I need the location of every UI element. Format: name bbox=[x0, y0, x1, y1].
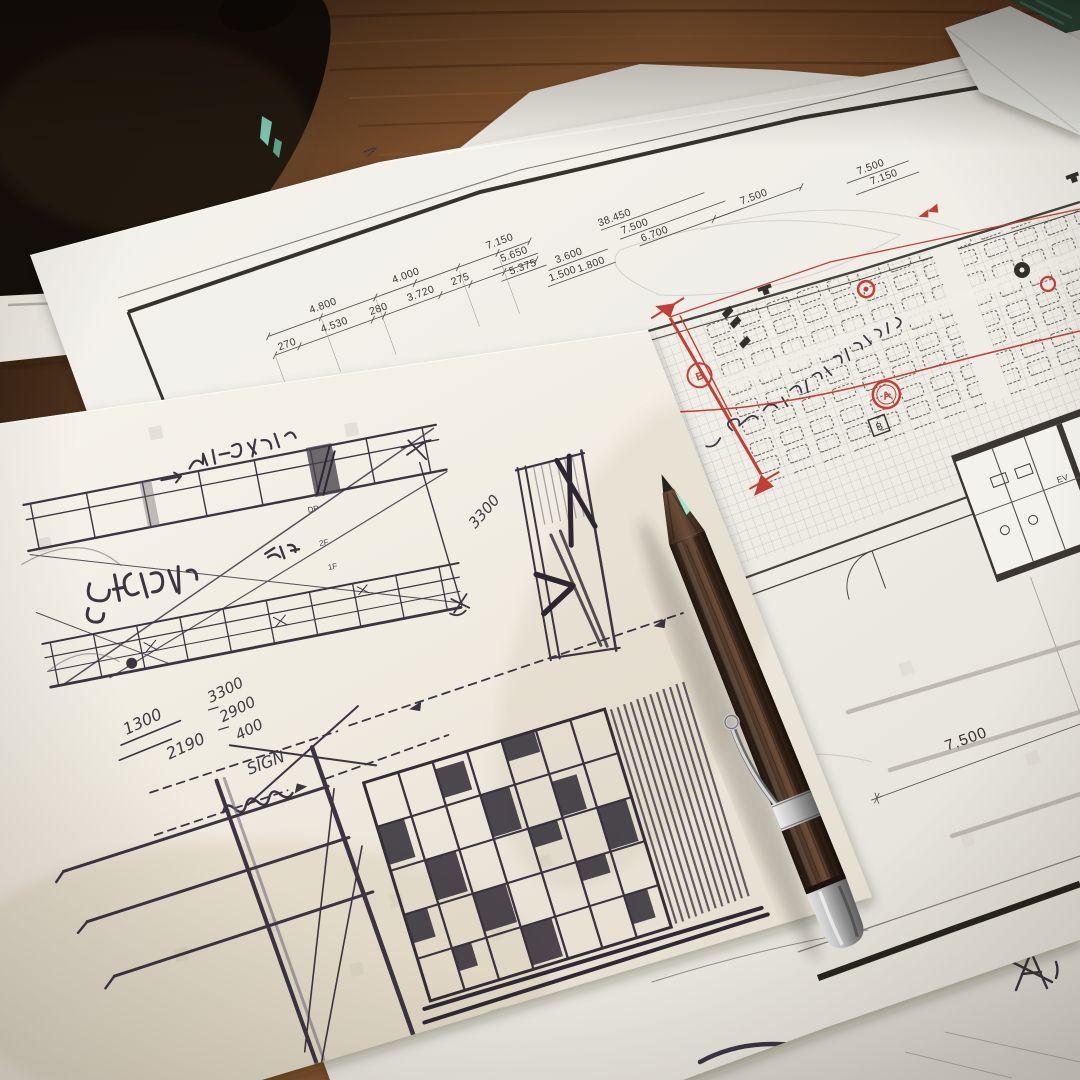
photo-svg: A bbox=[0, 0, 1080, 1080]
photo-scene: A bbox=[0, 0, 1080, 1080]
top-shade bbox=[0, 0, 1080, 150]
vignette bbox=[0, 0, 1080, 1080]
